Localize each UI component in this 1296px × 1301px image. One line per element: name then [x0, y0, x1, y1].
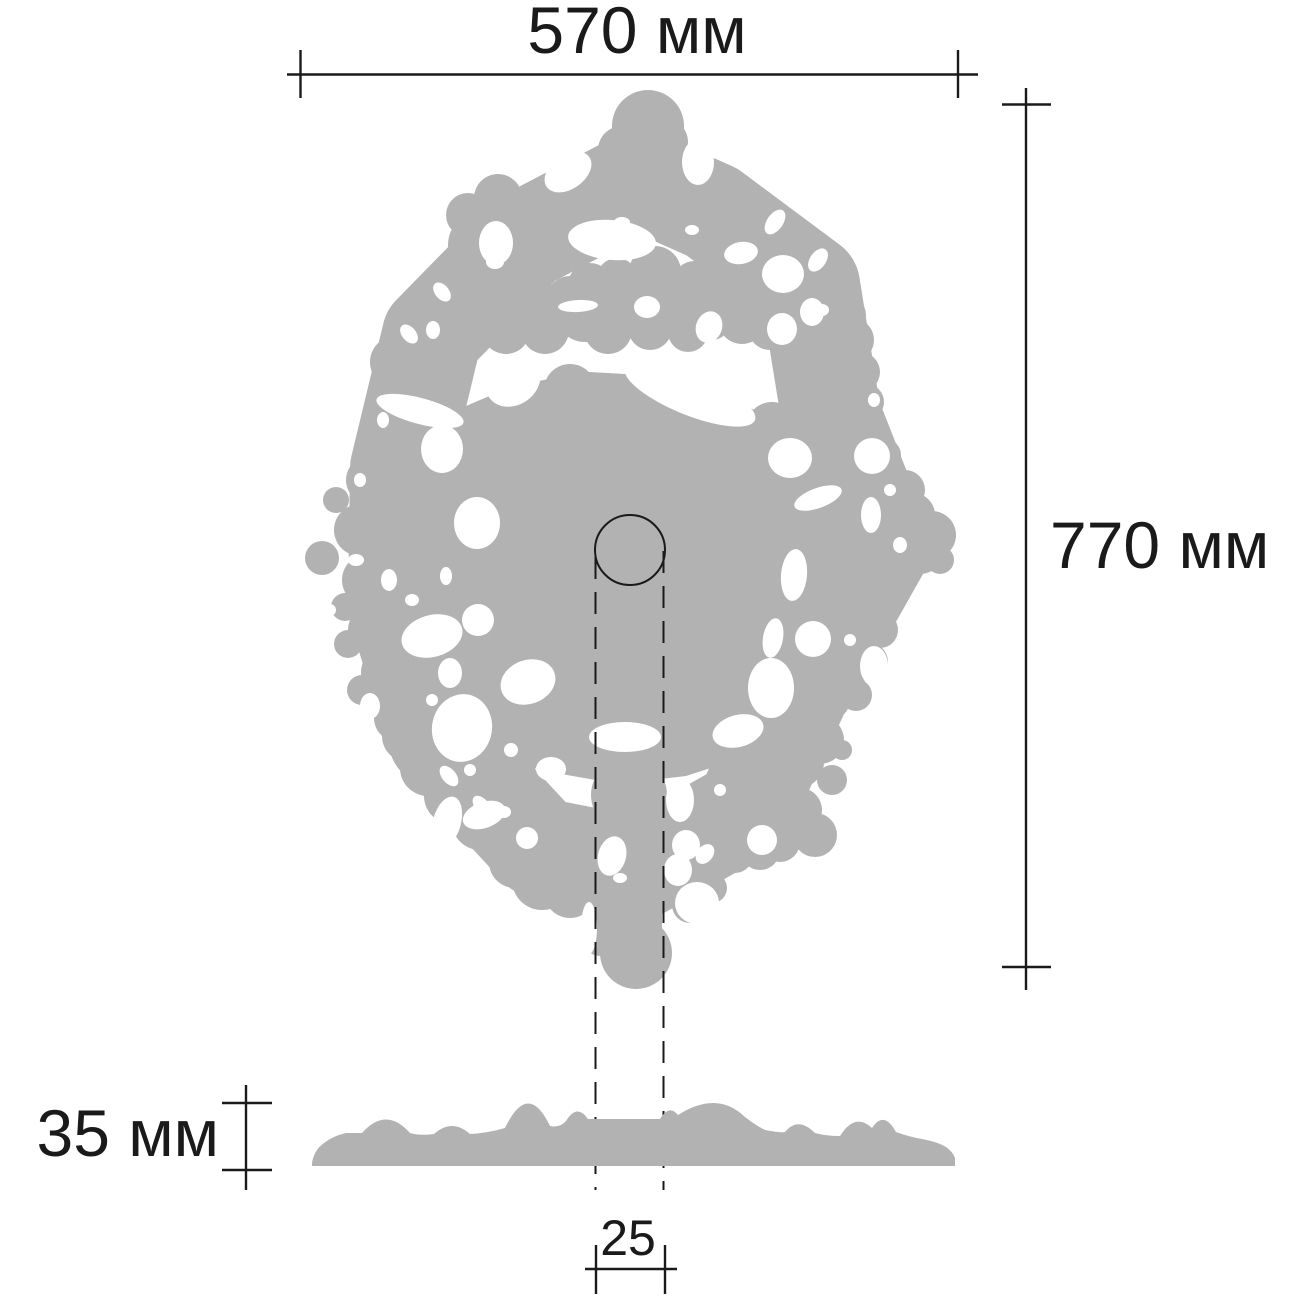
svg-text:770 мм: 770 мм: [1050, 508, 1269, 582]
svg-text:35 мм: 35 мм: [37, 1096, 220, 1170]
svg-text:25: 25: [600, 1210, 656, 1266]
svg-text:570 мм: 570 мм: [527, 0, 746, 67]
